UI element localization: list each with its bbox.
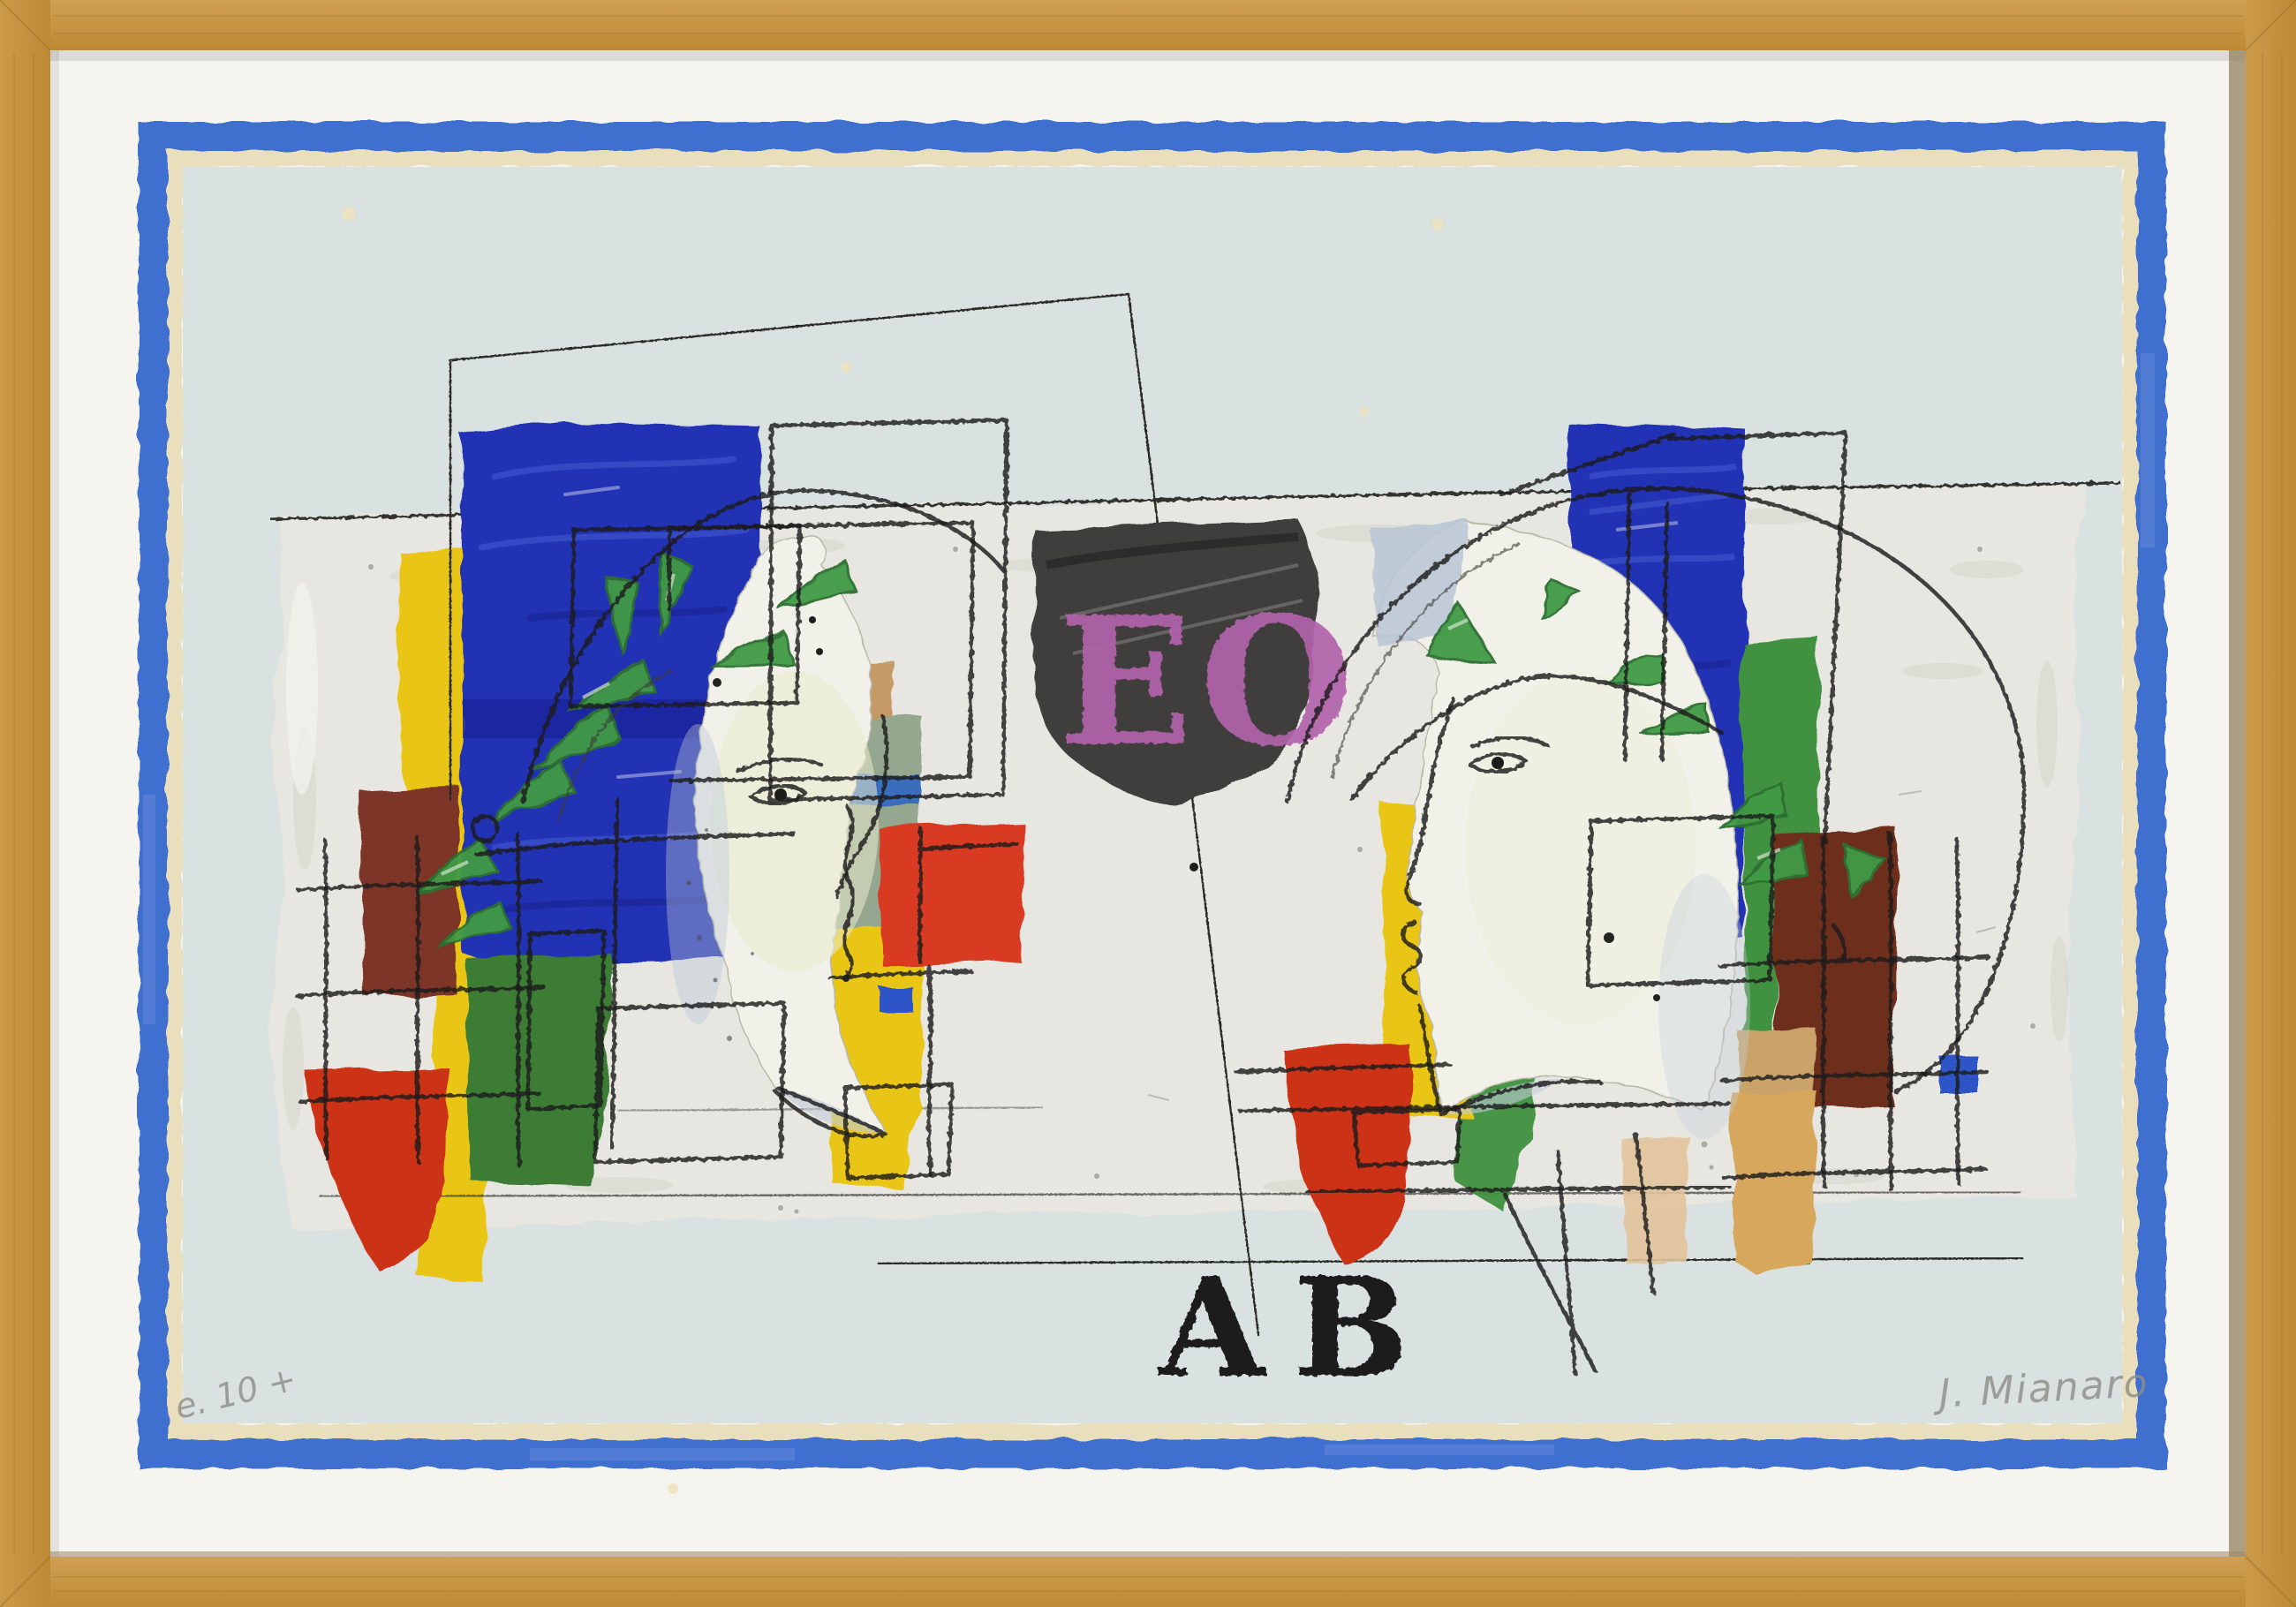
right-face-shading — [1658, 874, 1750, 1139]
mat-shadow-right — [2229, 50, 2246, 1557]
artwork-canvas: EO — [0, 0, 2296, 1607]
light-tan-patch — [1621, 1135, 1688, 1264]
crayon-dot — [809, 616, 816, 623]
right-pupil — [1492, 757, 1504, 769]
stencil-text-ab: AB — [1157, 1247, 1437, 1408]
frame-right-rail — [2246, 0, 2296, 1607]
crayon-dot — [816, 648, 823, 655]
framed-artwork-photo: EO — [0, 0, 2296, 1607]
mat-shadow-left — [50, 50, 59, 1557]
frame-top-rail — [0, 0, 2296, 50]
frame-left-rail — [0, 0, 50, 1607]
eo-patch-group: EO — [1033, 519, 1361, 807]
frame-bottom-rail — [0, 1557, 2296, 1607]
mat-shadow-top — [50, 50, 2246, 61]
crayon-dot — [1190, 863, 1198, 871]
left-maroon-rectangle — [360, 786, 459, 997]
small-blue-square-left — [880, 987, 913, 1012]
right-face-dot2 — [1653, 994, 1660, 1001]
mat-shadow-bottom — [50, 1551, 2246, 1557]
stencil-text-eo: EO — [1058, 578, 1361, 786]
left-face-dot — [713, 678, 721, 687]
right-face-dot — [1604, 932, 1614, 943]
ochre-patch — [1733, 1090, 1816, 1276]
left-face-shading — [666, 724, 729, 1024]
